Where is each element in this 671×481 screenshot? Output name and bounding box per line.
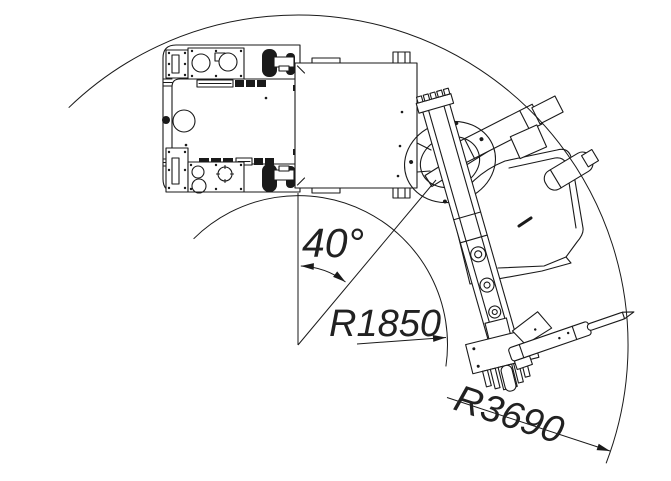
box-bump-top-left: [312, 58, 340, 63]
chassis: [162, 45, 300, 193]
connector-blocks-top: [235, 80, 266, 87]
tool-tip: [622, 309, 635, 319]
angle-dim-arc: [301, 266, 346, 282]
bracket: [279, 166, 289, 171]
box-bump-bottom-left: [312, 188, 340, 193]
deck-plate: [172, 79, 300, 164]
cab-box: [295, 52, 417, 198]
swing-angle-label: 40°: [302, 220, 364, 266]
tool-rod: [586, 312, 626, 332]
cad-drawing-canvas: 40° R1850 R3690: [0, 0, 671, 481]
swing-range-drawing: 40° R1850 R3690: [0, 0, 671, 481]
turret-links: [417, 143, 431, 172]
side-pin: [162, 116, 170, 124]
box-bump-bottom-right: [393, 188, 410, 198]
box-bump-top-right: [393, 52, 410, 63]
inner-radius-label: R1850: [329, 303, 441, 345]
hatch-circle: [219, 53, 237, 71]
bracket: [279, 66, 289, 71]
drill-tool: [500, 282, 639, 370]
box-outline: [295, 63, 417, 188]
